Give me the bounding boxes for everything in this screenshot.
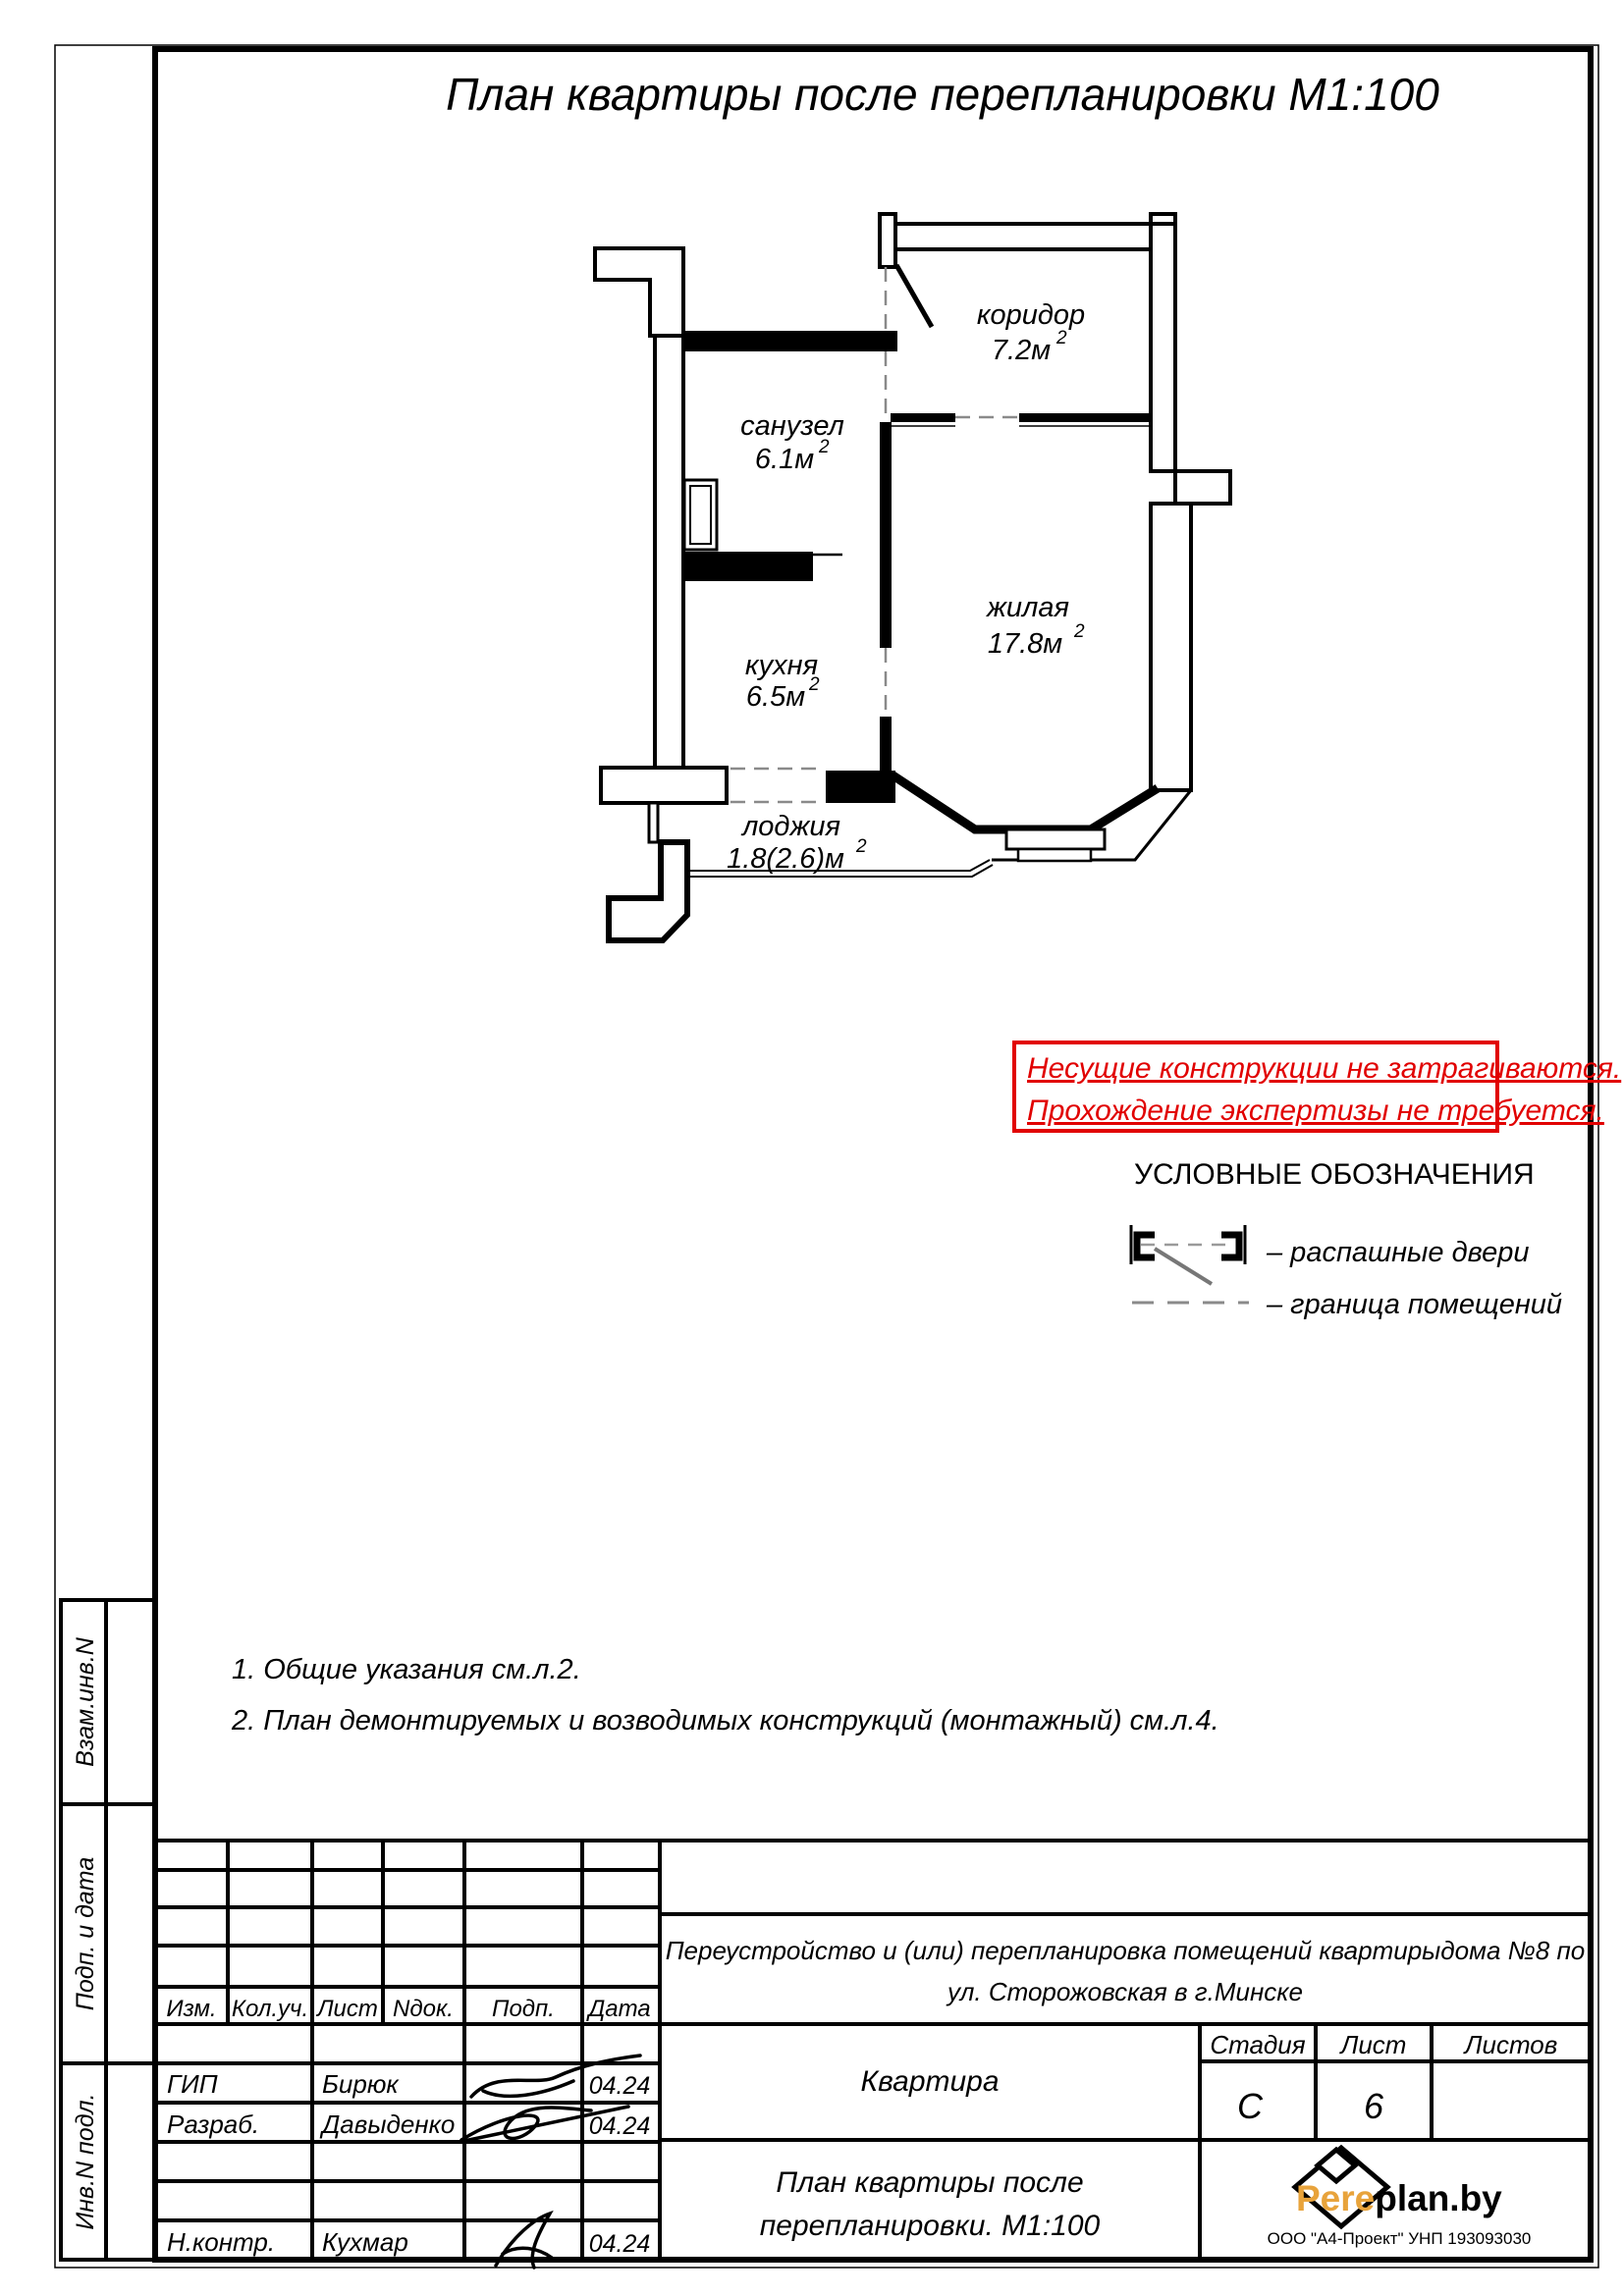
wall-right-lower bbox=[1151, 504, 1191, 790]
wall-left-pilaster-bottom bbox=[601, 768, 727, 803]
row-gip-role: ГИП bbox=[167, 2069, 218, 2099]
row-nkontr-date: 04.24 bbox=[589, 2230, 651, 2258]
wall-kitchen-bottom bbox=[826, 771, 895, 803]
col-data: Дата bbox=[585, 1996, 650, 2022]
col-izm: Изм. bbox=[166, 1996, 216, 2022]
room-area-sup-zhilaya: 2 bbox=[1073, 621, 1085, 642]
row-razrab-date: 04.24 bbox=[589, 2112, 651, 2140]
page-title: План квартиры после перепланировки М1:10… bbox=[446, 69, 1439, 120]
col-list: Лист bbox=[315, 1996, 378, 2022]
row-gip-date: 04.24 bbox=[589, 2072, 651, 2100]
logo-text-pere: Pere bbox=[1296, 2178, 1375, 2218]
row-nkontr-role: Н.контр. bbox=[167, 2227, 275, 2257]
notice-box: Несущие конструкции не затрагиваются. Пр… bbox=[1014, 1042, 1621, 1131]
floor-plan: коридор 7.2м 2 санузел 6.1м 2 жилая 17.8… bbox=[595, 214, 1230, 940]
room-area-sup-sanuzel: 2 bbox=[818, 437, 830, 457]
col-ndok: Nдок. bbox=[393, 1996, 454, 2022]
sidebar-label-podp: Подп. и дата bbox=[72, 1857, 99, 2011]
wall-entry-stub bbox=[880, 214, 895, 267]
sheet-value: 6 bbox=[1364, 2086, 1384, 2126]
outer-border bbox=[55, 45, 1598, 2268]
sidebar-label-vzam: Взам.инв.N bbox=[72, 1636, 99, 1767]
room-area-kuhnya: 6.5м bbox=[746, 681, 805, 713]
row-nkontr-name: Кухмар bbox=[322, 2227, 408, 2257]
wall-top bbox=[880, 224, 1175, 249]
wall-right-pilaster bbox=[1175, 471, 1230, 504]
legend-heading: УСЛОВНЫЕ ОБОЗНАЧЕНИЯ bbox=[1134, 1158, 1535, 1191]
swing-doors-icon bbox=[1131, 1225, 1245, 1284]
room-area-sup-kuhnya: 2 bbox=[808, 674, 820, 695]
sheet-label: Лист bbox=[1339, 2030, 1407, 2059]
wall-sanuzel-top bbox=[681, 331, 897, 351]
wall-kitchen-living-upper bbox=[880, 422, 892, 648]
wall-corridor-divider-left bbox=[891, 413, 955, 422]
note-2: 2. План демонтируемых и возводимых конст… bbox=[231, 1705, 1219, 1736]
room-label-koridor: коридор bbox=[977, 299, 1085, 331]
row-razrab-name: Давыденко bbox=[319, 2109, 455, 2139]
room-area-koridor: 7.2м bbox=[992, 335, 1051, 366]
room-label-kuhnya: кухня bbox=[745, 650, 818, 681]
room-label-zhilaya: жилая bbox=[985, 592, 1069, 623]
logo-text-plan: plan.by bbox=[1375, 2178, 1502, 2218]
project-line-1: Переустройство и (или) перепланировка по… bbox=[666, 1936, 1586, 1965]
main-frame bbox=[155, 49, 1591, 2260]
col-podp: Подп. bbox=[492, 1996, 555, 2022]
object-name: Квартира bbox=[860, 2065, 999, 2098]
wall-right-upper bbox=[1151, 224, 1175, 471]
wall-corridor-divider-right bbox=[1019, 413, 1151, 422]
wall-left bbox=[655, 336, 683, 768]
pereplan-logo: Pereplan.by ООО "А4-Проект" УНП 19309303… bbox=[1268, 2148, 1532, 2248]
room-area-sup-lodzhiya: 2 bbox=[855, 836, 867, 857]
logo-text: Pereplan.by bbox=[1296, 2178, 1502, 2218]
doc-title-line-2: перепланировки. М1:100 bbox=[760, 2210, 1101, 2242]
row-gip-name: Бирюк bbox=[322, 2069, 400, 2099]
stage-value: С bbox=[1237, 2086, 1264, 2126]
sheets-label: Листов bbox=[1463, 2030, 1558, 2059]
title-block: Изм. Кол.уч. Лист Nдок. Подп. Дата ГИП Б… bbox=[155, 1841, 1591, 2268]
room-area-sanuzel: 6.1м bbox=[755, 444, 814, 475]
bay-walls bbox=[892, 774, 1158, 829]
vent-shaft bbox=[684, 480, 717, 550]
drawing-sheet: План квартиры после перепланировки М1:10… bbox=[0, 0, 1623, 2296]
room-area-zhilaya: 17.8м bbox=[988, 628, 1062, 660]
room-area-sup-koridor: 2 bbox=[1055, 328, 1067, 348]
col-koluch: Кол.уч. bbox=[232, 1996, 308, 2022]
note-1: 1. Общие указания см.л.2. bbox=[232, 1654, 581, 1685]
room-label-lodzhiya: лоджия bbox=[740, 811, 840, 842]
wall-kitchen-living-lower bbox=[880, 717, 892, 773]
doc-title-line-1: План квартиры после bbox=[776, 2166, 1083, 2199]
balcony-foot bbox=[609, 842, 687, 940]
entry-door-swing bbox=[896, 265, 932, 327]
project-line-2: ул. Сторожовская в г.Минске bbox=[946, 1977, 1303, 2006]
sidebar-label-inv: Инв.N подл. bbox=[72, 2093, 99, 2229]
logo-subtext: ООО "А4-Проект" УНП 193093030 bbox=[1268, 2229, 1532, 2248]
blueprint-canvas: План квартиры после перепланировки М1:10… bbox=[0, 0, 1623, 2296]
wall-sanuzel-kitchen bbox=[681, 552, 813, 581]
legend-item-doors: – распашные двери bbox=[1266, 1237, 1530, 1268]
sidebar-stamps: Взам.инв.N Подп. и дата Инв.N подл. bbox=[61, 1600, 155, 2260]
balcony-strut bbox=[649, 803, 658, 842]
legend-item-boundary: – граница помещений bbox=[1266, 1289, 1562, 1320]
row-razrab-role: Разраб. bbox=[167, 2109, 259, 2139]
room-area-lodzhiya: 1.8(2.6)м bbox=[727, 843, 844, 875]
notice-line-2: Прохождение экспертизы не требуется. bbox=[1027, 1095, 1604, 1127]
legend: УСЛОВНЫЕ ОБОЗНАЧЕНИЯ – распашные двери –… bbox=[1131, 1158, 1562, 1320]
bay-window-sill-inner bbox=[1018, 849, 1091, 861]
wall-left-pilaster-top bbox=[595, 248, 683, 336]
bay-window-sill bbox=[1006, 829, 1105, 849]
notice-line-1: Несущие конструкции не затрагиваются. bbox=[1027, 1052, 1621, 1085]
stage-label: Стадия bbox=[1210, 2030, 1305, 2059]
